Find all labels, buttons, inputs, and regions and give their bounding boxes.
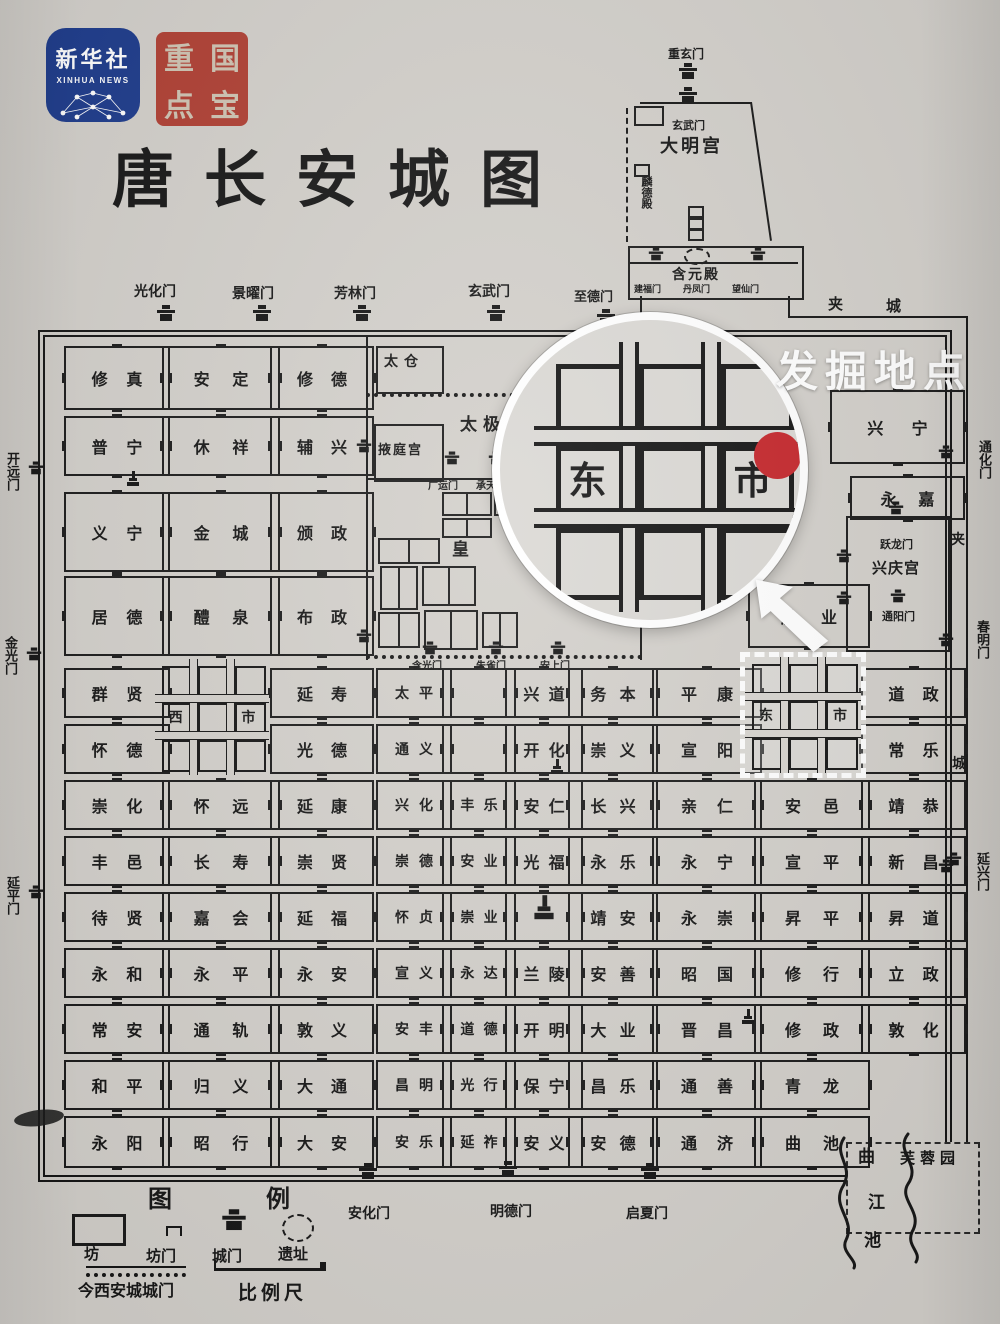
ward-label: 崇: [297, 849, 313, 873]
ward-gate-nub: [317, 946, 327, 950]
ward-gate-nub: [440, 1024, 444, 1034]
ward-gate-nub: [807, 1114, 817, 1118]
ward-gate-nub: [216, 1166, 226, 1170]
office-box: [378, 612, 420, 648]
ward-box: 崇义: [568, 724, 658, 774]
ward-gate-nub: [752, 856, 756, 866]
ward-gate-nub: [440, 800, 444, 810]
ward-box: 通济: [652, 1116, 762, 1168]
ward-gate-nub: [539, 1058, 549, 1062]
ward-box: 修真: [64, 346, 170, 410]
ward-box: 嘉会: [162, 892, 280, 942]
ward-gate-nub: [216, 1114, 226, 1118]
ward-gate-nub: [608, 722, 618, 726]
ward-gate-nub: [964, 856, 968, 866]
ward-label: 敦: [297, 1017, 313, 1041]
ward-label: 昌: [923, 849, 939, 873]
ward-gate-nub: [566, 800, 570, 810]
ward-label: 贞: [419, 907, 433, 927]
ward-label: 兰: [523, 961, 539, 985]
ward-label: 亲: [681, 793, 697, 817]
ward-gate-nub: [160, 373, 164, 383]
ward-label: 通: [395, 739, 409, 759]
ward-label: 宁: [912, 415, 928, 439]
ward-box: 醴泉: [162, 576, 280, 656]
ward-label: 永: [681, 849, 697, 873]
gate-label: 景曜门: [232, 288, 274, 302]
ward-gate-nub: [440, 1137, 444, 1147]
ward-gate-nub: [112, 884, 122, 888]
ward-label: 贤: [126, 681, 142, 705]
jiacheng-label: 夹: [828, 298, 843, 313]
ward-gate-nub: [909, 1052, 919, 1056]
ward-gate-nub: [62, 373, 66, 383]
ward-label: 保: [523, 1073, 539, 1097]
ward-gate-nub: [539, 834, 549, 838]
ward-gate-nub: [112, 414, 122, 418]
ward-box: 昇平: [754, 892, 870, 942]
ward-gate-nub: [112, 1114, 122, 1118]
ward-gate-nub: [702, 722, 712, 726]
ward-label: 政: [923, 961, 939, 985]
ward-label: 开: [523, 737, 539, 761]
ward-gate-nub: [62, 800, 66, 810]
ward-gate-nub: [112, 828, 122, 832]
ward-label: 兴: [620, 793, 636, 817]
ward-gate-nub: [317, 490, 327, 494]
ward-label: 长: [194, 849, 210, 873]
ward-gate-nub: [807, 996, 817, 1000]
excavation-label: 发掘地点: [776, 338, 972, 399]
ward-gate-nub: [566, 744, 570, 754]
ward-label: 立: [888, 961, 904, 985]
ward-gate-nub: [317, 408, 327, 412]
ward-gate-nub: [112, 344, 122, 348]
ward-gate-nub: [160, 527, 164, 537]
ward-label: 修: [297, 366, 313, 390]
ward-gate-nub: [702, 946, 712, 950]
ward-gate-nub: [62, 441, 66, 451]
ward-box: 永宁: [652, 836, 762, 886]
ward-label: 修: [785, 961, 801, 985]
ward-gate-nub: [216, 778, 226, 782]
ward-box: 怀远: [162, 780, 280, 830]
gate-tower-icon: [682, 72, 694, 79]
ward-box: 修德: [270, 346, 374, 410]
legend-label-ward: 坊: [84, 1248, 99, 1263]
ward-box: 光德: [270, 724, 374, 774]
west-market-label: 西: [162, 703, 189, 731]
ward-gate-nub: [474, 1058, 484, 1062]
daming-top-gate-label: 重玄门: [668, 48, 704, 60]
ward-gate-nub: [964, 1024, 968, 1034]
ward-label: 乐: [620, 1073, 636, 1097]
ward-label: 福: [331, 905, 347, 929]
ward-gate-nub: [650, 856, 654, 866]
ward-box: 务本: [568, 668, 658, 718]
ward-gate-nub: [317, 722, 327, 726]
ward-gate-nub: [650, 912, 654, 922]
ward-gate-nub: [112, 1166, 122, 1170]
gate-tower-icon: [839, 599, 849, 605]
ward-label: 靖: [888, 793, 904, 817]
anshang-gate-label: 安上门: [540, 662, 570, 672]
ward-gate-nub: [112, 946, 122, 950]
jiacheng-wall-top: [790, 316, 968, 318]
ward-label: 政: [331, 520, 347, 544]
legend-scale-bar: [214, 1258, 326, 1271]
ward-label: 寿: [232, 849, 248, 873]
gate-tower-icon: [682, 96, 694, 103]
ward-gate-nub: [112, 722, 122, 726]
ward-gate-nub: [650, 1080, 654, 1090]
ward-label: 达: [484, 963, 498, 983]
ward-label: 宣: [395, 963, 409, 983]
ward-gate-nub: [268, 744, 272, 754]
ward-label: 道: [888, 681, 904, 705]
ward-label: 义: [419, 739, 433, 759]
ward-label: 平: [681, 681, 697, 705]
ward-label: 会: [232, 905, 248, 929]
pagoda-icon: [551, 770, 563, 774]
ward-gate-nub: [317, 940, 327, 944]
ward-gate-nub: [62, 611, 66, 621]
ward-gate-nub: [539, 996, 549, 1000]
gate-tower-icon: [753, 255, 763, 261]
ward-box: 金城: [162, 492, 280, 572]
ward-gate-nub: [440, 968, 444, 978]
ward-gate-nub: [317, 1002, 327, 1006]
ward-box: 靖恭: [861, 780, 966, 830]
ward-gate-nub: [62, 744, 66, 754]
ward-label: 光: [460, 1075, 474, 1095]
ward-gate-nub: [216, 414, 226, 418]
ward-box: 靖安: [568, 892, 658, 942]
gate-label: 开远门: [6, 452, 19, 491]
ward-label: 通: [331, 1073, 347, 1097]
ward-gate-nub: [539, 940, 549, 944]
ward-gate-nub: [964, 744, 968, 754]
ward-label: 安: [523, 1130, 539, 1154]
ward-gate-nub: [374, 800, 378, 810]
ward-label: 普: [92, 434, 108, 458]
ward-gate-nub: [650, 744, 654, 754]
east-market-label: 东: [752, 701, 780, 729]
ward-gate-nub: [702, 884, 712, 888]
ward-box: 丰邑: [64, 836, 170, 886]
ward-gate-nub: [374, 968, 378, 978]
daming-north-wall: [640, 102, 752, 104]
ward-gate-nub: [859, 856, 863, 866]
ward-label: 永: [460, 963, 474, 983]
ward-box: 昭行: [162, 1116, 280, 1168]
ward-gate-nub: [807, 940, 817, 944]
ward-gate-nub: [160, 441, 164, 451]
ward-box: 永和: [64, 948, 170, 998]
west-market-street: [189, 659, 198, 775]
ward-gate-nub: [372, 527, 376, 537]
ward-gate-nub: [317, 574, 327, 578]
gate-tower-icon: [447, 459, 457, 465]
ward-gate-nub: [440, 744, 444, 754]
ward-label: 和: [92, 1073, 108, 1097]
gate-tower-icon: [359, 447, 369, 453]
xinhua-logo-english: XINHUA NEWS: [46, 76, 140, 85]
qujiang-label-char: 江: [868, 1194, 885, 1211]
ward-label: 业: [484, 851, 498, 871]
ward-gate-nub: [268, 611, 272, 621]
ward-label: 定: [232, 366, 248, 390]
ward-gate-nub: [268, 856, 272, 866]
ward-box: 永乐: [568, 836, 658, 886]
ward-label: 本: [620, 681, 636, 705]
ward-label: 颁: [297, 520, 313, 544]
legend-label-ward-gate: 坊门: [146, 1250, 176, 1265]
ward-gate-nub: [374, 856, 378, 866]
ward-gate-nub: [474, 778, 484, 782]
ward-gate-nub: [62, 1080, 66, 1090]
ward-gate-nub: [62, 912, 66, 922]
ward-gate-nub: [160, 968, 164, 978]
ward-gate-nub: [752, 1137, 756, 1147]
ward-label: 政: [923, 681, 939, 705]
ward-label: 丰: [460, 795, 474, 815]
ward-label: 道: [460, 1019, 474, 1039]
ward-gate-nub: [268, 1024, 272, 1034]
ward-gate-nub: [112, 1052, 122, 1056]
ward-label: 永: [194, 961, 210, 985]
ward-label: 安: [785, 793, 801, 817]
ward-label: 行: [823, 961, 839, 985]
ward-gate-nub: [807, 1002, 817, 1006]
ward-label: 德: [331, 366, 347, 390]
east-market-street: [745, 692, 861, 701]
gate-tower-icon: [502, 1170, 514, 1177]
west-market-street: [155, 694, 269, 703]
east-market-street: [745, 729, 861, 738]
legend-ruins-symbol: [282, 1214, 314, 1242]
ward-gate-nub: [409, 1002, 419, 1006]
ward-gate-nub: [650, 688, 654, 698]
ward-gate-nub: [539, 1002, 549, 1006]
ward-gate-nub: [503, 1024, 507, 1034]
ward-label: 贤: [126, 905, 142, 929]
gate-tower-icon: [29, 655, 39, 661]
ward-gate-nub: [216, 996, 226, 1000]
ward-label: 通: [194, 1017, 210, 1041]
ward-label: 和: [126, 961, 142, 985]
ward-label: 崇: [460, 907, 474, 927]
ward-gate-nub: [112, 574, 122, 578]
taicang-box: [376, 346, 444, 394]
ward-gate-nub: [317, 772, 327, 776]
ward-gate-nub: [608, 778, 618, 782]
ward-label: 善: [620, 961, 636, 985]
daming-notch: [634, 106, 664, 126]
ward-label: 善: [717, 1073, 733, 1097]
west-market-street: [226, 659, 235, 775]
ward-box: 安善: [568, 948, 658, 998]
ward-gate-nub: [112, 654, 122, 658]
ward-label: 义: [549, 1130, 565, 1154]
gate-label: 玄武门: [468, 286, 510, 300]
ward-gate-nub: [868, 1080, 872, 1090]
office-box: [442, 492, 492, 516]
ward-gate-nub: [317, 1058, 327, 1062]
ward-gate-nub: [650, 968, 654, 978]
ward-label: 青: [785, 1073, 801, 1097]
ward-gate-nub: [112, 490, 122, 494]
ward-label: 贤: [331, 849, 347, 873]
ward-label: 济: [717, 1130, 733, 1154]
ward-label: 平: [823, 849, 839, 873]
daming-hall-mark: [688, 229, 704, 241]
ward-gate-nub: [112, 996, 122, 1000]
seal-char: 重: [164, 34, 194, 78]
gate-label: 光化门: [134, 286, 176, 300]
ward-label: 修: [785, 1017, 801, 1041]
ward-gate-nub: [317, 1114, 327, 1118]
gate-tower-icon: [256, 314, 268, 321]
ward-gate-nub: [374, 1137, 378, 1147]
ward-gate-nub: [807, 778, 817, 782]
ward-gate-nub: [374, 688, 378, 698]
ward-gate-nub: [539, 1114, 549, 1118]
ward-label: 乐: [620, 849, 636, 873]
ward-label: 金: [194, 520, 210, 544]
ward-gate-nub: [702, 1058, 712, 1062]
ward-gate-nub: [440, 688, 444, 698]
ward-gate-nub: [160, 1024, 164, 1034]
ward-label: 安: [194, 366, 210, 390]
gate-tower-icon: [839, 557, 849, 563]
ward-gate-nub: [807, 828, 817, 832]
ward-label: 安: [590, 1130, 606, 1154]
gate-tower-icon: [160, 314, 172, 321]
ward-gate-nub: [62, 1137, 66, 1147]
legend-title: 图 例: [148, 1188, 334, 1212]
ward-gate-nub: [112, 772, 122, 776]
ward-box: 安德: [568, 1116, 658, 1168]
ward-gate-nub: [859, 1024, 863, 1034]
ward-gate-nub: [409, 884, 419, 888]
ward-label: 义: [620, 737, 636, 761]
gate-label: 芳林门: [334, 288, 376, 302]
ward-gate-nub: [608, 884, 618, 888]
gate-tower-icon: [31, 469, 41, 475]
ward-gate-nub: [909, 940, 919, 944]
ward-label: 安: [126, 1017, 142, 1041]
ward-label: 德: [620, 1130, 636, 1154]
ward-label: 待: [92, 905, 108, 929]
ward-box: 敦化: [861, 1004, 966, 1054]
ward-gate-nub: [608, 666, 618, 670]
ward-label: 光: [523, 849, 539, 873]
ward-gate-nub: [702, 940, 712, 944]
ward-gate-nub: [650, 1024, 654, 1034]
ward-gate-nub: [608, 1166, 618, 1170]
ward-gate-nub: [409, 1058, 419, 1062]
ward-gate-nub: [608, 828, 618, 832]
ward-gate-nub: [909, 946, 919, 950]
ward-label: 乐: [923, 737, 939, 761]
ward-gate-nub: [909, 716, 919, 720]
ward-box: 居德: [64, 576, 170, 656]
ward-label: 兴: [867, 415, 883, 439]
zhuque-gate-label: 朱雀门: [476, 662, 506, 672]
office-box: [422, 566, 476, 606]
ward-gate-nub: [409, 828, 419, 832]
ward-gate-nub: [216, 1058, 226, 1062]
ward-box: 群贤: [64, 668, 170, 718]
ward-gate-nub: [160, 611, 164, 621]
ward-label: 康: [717, 681, 733, 705]
ward-gate-nub: [828, 422, 832, 432]
gate-tower-icon: [651, 255, 661, 261]
ward-label: 德: [126, 737, 142, 761]
ward-label: 道: [549, 681, 565, 705]
ward-gate-nub: [374, 1024, 378, 1034]
ward-gate-nub: [216, 884, 226, 888]
ward-box: 颁政: [270, 492, 374, 572]
ward-gate-nub: [62, 968, 66, 978]
ward-label: 归: [194, 1073, 210, 1097]
ward-gate-nub: [859, 912, 863, 922]
ward-gate-nub: [503, 1080, 507, 1090]
ward-gate-nub: [566, 856, 570, 866]
ward-label: 安: [395, 1132, 409, 1152]
ward-box: 新昌: [861, 836, 966, 886]
ward-label: 靖: [590, 905, 606, 929]
ward-gate-nub: [317, 666, 327, 670]
ward-gate-nub: [409, 716, 419, 720]
ward-label: 群: [92, 681, 108, 705]
office-box: [380, 566, 418, 610]
ward-label: 永: [297, 961, 313, 985]
magnified-market-street: [701, 342, 721, 612]
ward-gate-nub: [868, 611, 872, 621]
ward-gate-nub: [62, 688, 66, 698]
east-market-street: [817, 657, 826, 773]
ward-gate-nub: [372, 611, 376, 621]
ward-label: 崇: [92, 793, 108, 817]
ward-label: 永: [681, 905, 697, 929]
ward-label: 敦: [888, 1017, 904, 1041]
ward-box: 长寿: [162, 836, 280, 886]
ward-gate-nub: [112, 666, 122, 670]
ward-gate-nub: [539, 1108, 549, 1112]
gate-label: 延兴门: [976, 852, 989, 891]
ward-label: 安: [395, 1019, 409, 1039]
ward-gate-nub: [909, 834, 919, 838]
ward-gate-nub: [112, 1108, 122, 1112]
ward-gate-nub: [409, 996, 419, 1000]
ward-gate-nub: [909, 1002, 919, 1006]
ward-label: 常: [92, 1017, 108, 1041]
ward-gate-nub: [752, 912, 756, 922]
daming-xuanwu-gate-label: 玄武门: [672, 121, 705, 132]
legend-modern-wall-symbol: [86, 1266, 186, 1277]
ward-gate-nub: [409, 834, 419, 838]
ward-gate-nub: [566, 1024, 570, 1034]
ward-gate-nub: [440, 912, 444, 922]
magnified-market-street: [619, 342, 639, 612]
ward-label: 昌: [590, 1073, 606, 1097]
ward-box: 宣平: [754, 836, 870, 886]
gate-label: 明德门: [490, 1206, 532, 1220]
ward-gate-nub: [807, 1166, 817, 1170]
ward-label: 仁: [717, 793, 733, 817]
